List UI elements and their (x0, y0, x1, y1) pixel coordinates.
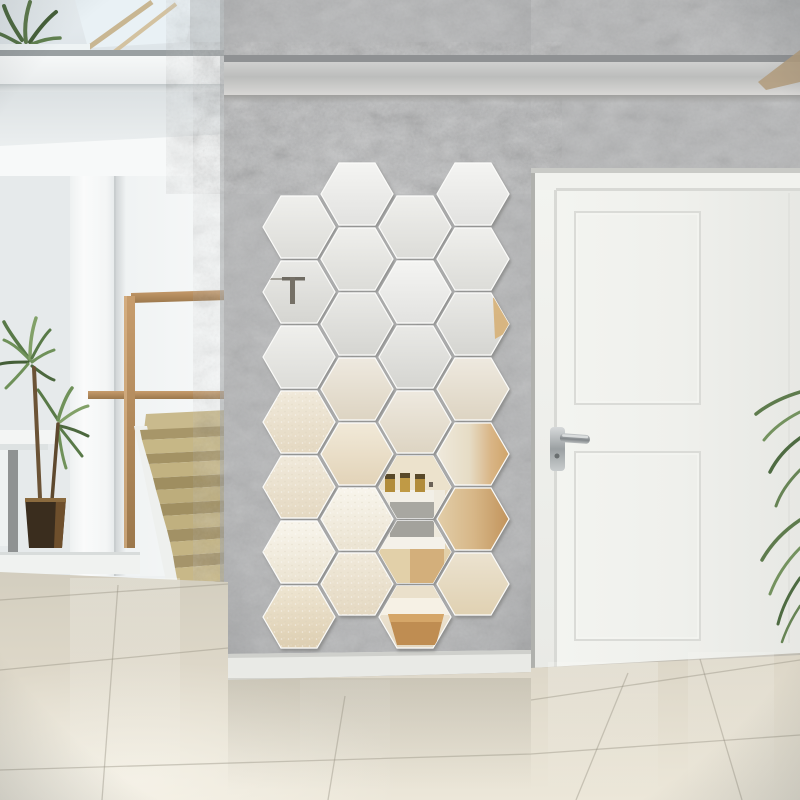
vignette (0, 0, 800, 800)
hallway-photo (0, 0, 800, 800)
